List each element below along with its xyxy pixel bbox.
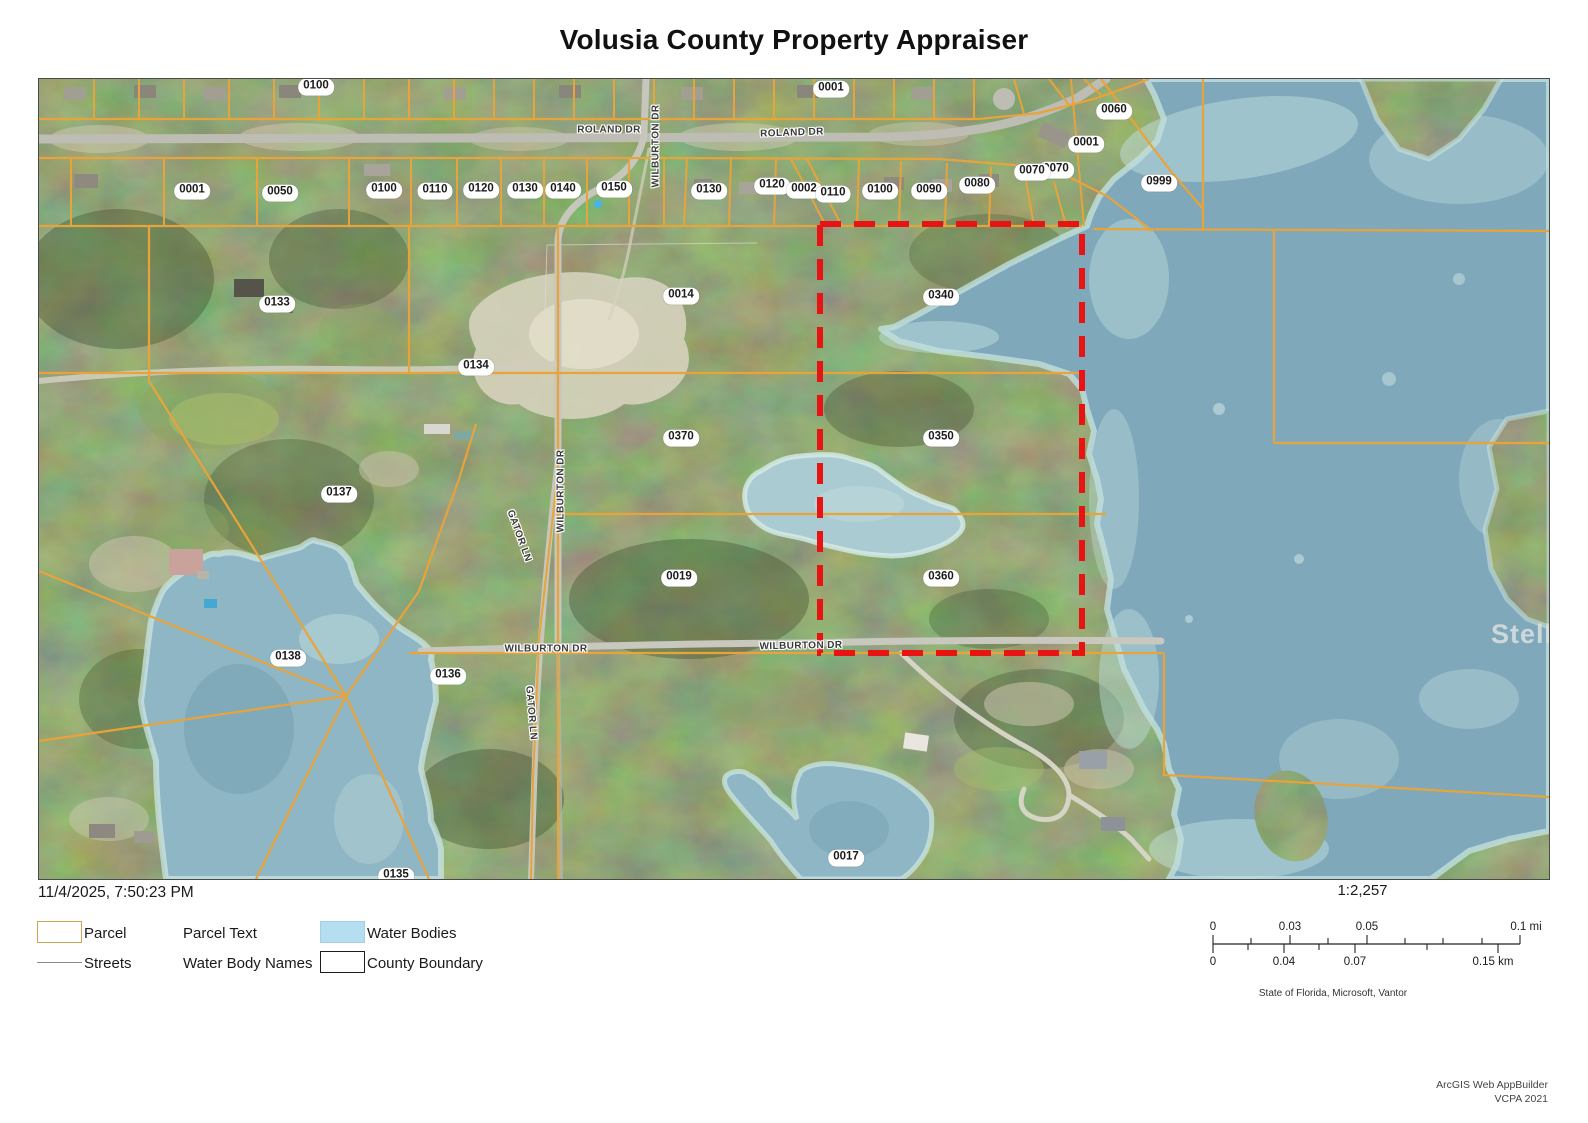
map-canvas[interactable] [39,79,1549,879]
map-viewport[interactable]: 0100000100600001007009990001005001000110… [38,78,1550,880]
legend-county-boundary-label: County Boundary [367,955,483,972]
map-attribution: State of Florida, Microsoft, Vantor [1180,988,1486,999]
export-timestamp: 11/4/2025, 7:50:23 PM [38,884,194,902]
app-credits: ArcGIS Web AppBuilder VCPA 2021 [1436,1078,1548,1106]
scale-label: 0 [1210,921,1216,933]
scale-bar: 00.030.050.1 mi 00.040.070.15 km [1180,906,1580,974]
scale-label: 0.1 mi [1510,921,1541,933]
scale-label: 0 [1210,956,1216,968]
legend-water-swatch [320,921,365,943]
page-title: Volusia County Property Appraiser [0,24,1588,56]
culdesac [993,88,1015,110]
stellar-watermark: StellarMLS [1491,619,1550,650]
legend-parcel-swatch [37,921,82,943]
scale-ratio: 1:2,257 [1180,882,1545,899]
credit-line-2: VCPA 2021 [1436,1092,1548,1106]
legend-water-body-names-label: Water Body Names [183,955,313,972]
scale-bar-km-ticks [1213,944,1498,953]
credit-line-1: ArcGIS Web AppBuilder [1436,1078,1548,1092]
scale-label: 0.03 [1279,921,1301,933]
scale-label: 0.07 [1344,956,1366,968]
legend-streets-label: Streets [84,955,132,972]
scale-km-labels: 00.040.070.15 km [1210,956,1514,968]
legend-water-bodies-label: Water Bodies [367,925,456,942]
scale-label: 0.04 [1273,956,1296,968]
print-page: Volusia County Property Appraiser [0,0,1588,1123]
legend-parcel-label: Parcel [84,925,127,942]
legend-county-swatch [320,951,365,973]
scale-label: 0.05 [1356,921,1378,933]
scale-mi-labels: 00.030.050.1 mi [1210,921,1542,933]
sand-patch [469,272,689,419]
legend-streets-swatch [37,962,82,963]
scale-bar-mi-ticks [1213,935,1520,944]
scale-label: 0.15 km [1473,956,1514,968]
legend-parcel-text-label: Parcel Text [183,925,257,942]
